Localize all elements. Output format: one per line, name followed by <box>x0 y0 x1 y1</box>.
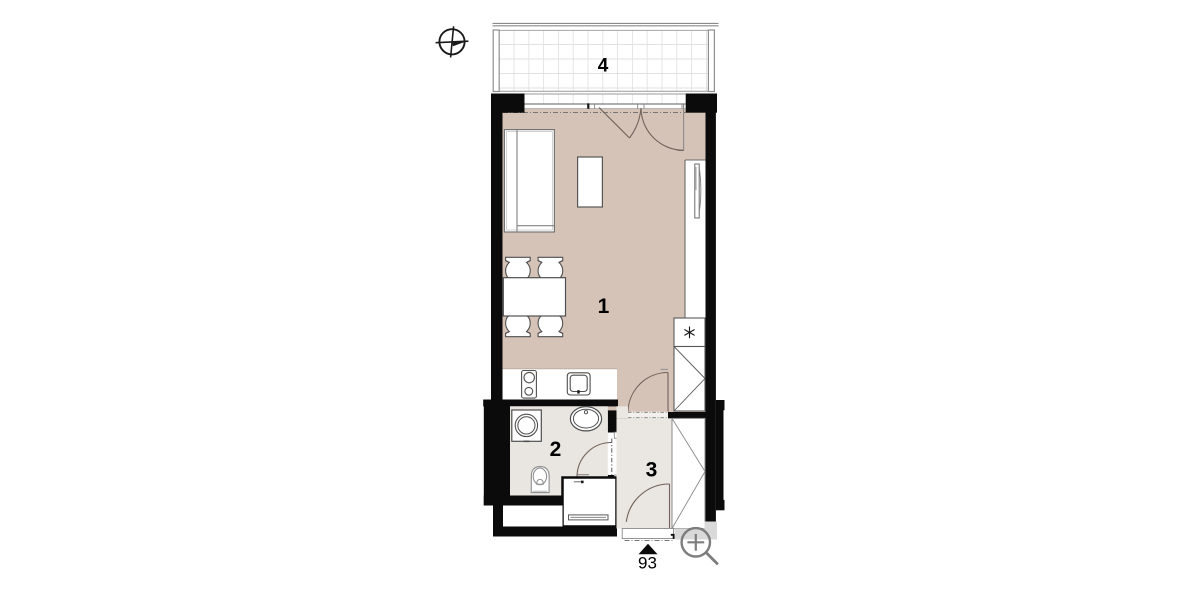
svg-text:1: 1 <box>598 295 610 318</box>
svg-text:93: 93 <box>638 554 657 573</box>
svg-text:4: 4 <box>598 56 609 77</box>
svg-text:3: 3 <box>646 459 658 482</box>
svg-text:2: 2 <box>550 438 562 461</box>
